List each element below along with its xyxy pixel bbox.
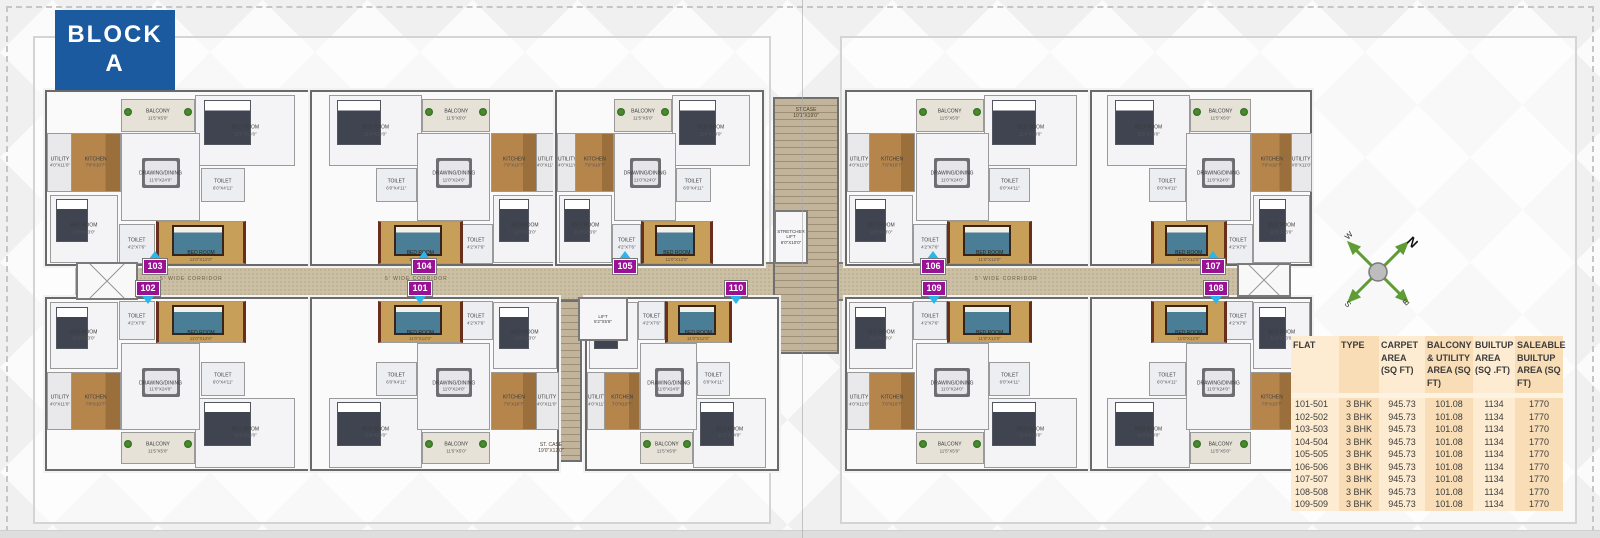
bedroom-room: BED ROOM11'0"X13'0" bbox=[50, 195, 118, 262]
unit-number-badge: 108 bbox=[1204, 281, 1227, 296]
bed-icon bbox=[992, 402, 1036, 446]
kitchen-room: KITCHEN7'0"X10'7" bbox=[1251, 372, 1292, 430]
table-row: 101-5013 BHK945.73101.0811341770 bbox=[1291, 398, 1563, 411]
room-label: UTILITY4'0"X11'0" bbox=[48, 396, 72, 407]
room-dims: 11'0"X24'0" bbox=[917, 387, 988, 392]
room-label: BED ROOM11'0"X12'0" bbox=[950, 331, 1028, 342]
room-dims: 11'0"X24'0" bbox=[122, 178, 199, 183]
room-label: KITCHEN7'0"X10'7" bbox=[492, 157, 536, 168]
flat-area-table: FLATTYPECARPET AREA (SQ FT)BALCONY & UTI… bbox=[1291, 336, 1563, 511]
room-dims: 11'0"X14'0" bbox=[196, 131, 294, 136]
room-label: TOILET6'0"X4'11" bbox=[202, 180, 244, 191]
table-cell: 1134 bbox=[1473, 498, 1515, 511]
bedroom-room: BED ROOM11'0"X14'0" bbox=[329, 398, 422, 468]
table-cell: 945.73 bbox=[1379, 411, 1425, 424]
room-dims: 7'0"X10'7" bbox=[576, 163, 613, 168]
table-cell: 109-509 bbox=[1291, 498, 1339, 511]
table-cell: 1770 bbox=[1515, 436, 1563, 449]
room-label: DRAWING/DINING11'0"X24'0" bbox=[418, 172, 489, 183]
room-dims: 11'5"X5'0" bbox=[423, 116, 489, 121]
column-header: TYPE bbox=[1339, 336, 1379, 393]
toilet-room: TOILET4'2"X7'6" bbox=[459, 224, 493, 264]
room-label: UTILITY4'0"X11'0" bbox=[48, 157, 72, 168]
column-header: SALEABLE BUILTUP AREA (SQ FT) bbox=[1515, 336, 1563, 393]
room-dims: 6'0"X4'11" bbox=[202, 379, 244, 384]
unit-109: UTILITY4'0"X11'0"KITCHEN7'0"X10'7"BALCON… bbox=[845, 297, 1094, 471]
table-row: 109-5093 BHK945.73101.0811341770 bbox=[1291, 498, 1563, 511]
room-label: BED ROOM11'0"X14'0" bbox=[985, 427, 1076, 438]
room-dims: 11'0"X24'0" bbox=[917, 178, 988, 183]
bedroom-room: BED ROOM11'0"X14'0" bbox=[984, 95, 1077, 166]
table-cell: 105-505 bbox=[1291, 448, 1339, 461]
room-label: UTILITY4'0"X11'0" bbox=[848, 157, 870, 168]
table-row: 108-5083 BHK945.73101.0811341770 bbox=[1291, 486, 1563, 499]
room-label: KITCHEN7'0"X10'7" bbox=[1252, 396, 1291, 407]
toilet-room: TOILET4'2"X7'6" bbox=[1223, 301, 1253, 340]
compass-e: E bbox=[1401, 297, 1411, 307]
master-room: BED ROOM11'0"X12'0" bbox=[947, 301, 1031, 344]
room-dims: 11'0"X13'0" bbox=[51, 229, 117, 234]
unit-badge-107: 107 bbox=[1198, 251, 1228, 274]
room-label: BED ROOM11'0"X12'0" bbox=[668, 331, 729, 342]
toilet-room: TOILET6'0"X4'11" bbox=[697, 362, 729, 396]
room-label: BED ROOM11'0"X13'0" bbox=[51, 330, 117, 341]
bedroom-room: BED ROOM11'0"X13'0" bbox=[849, 195, 912, 262]
room-label: UTILITY4'0"X11'0" bbox=[848, 396, 870, 407]
room-dims: 11'0"X13'0" bbox=[850, 336, 911, 341]
table-cell: 945.73 bbox=[1379, 498, 1425, 511]
room-dims: 11'0"X12'0" bbox=[950, 336, 1028, 341]
room-dims: 11'0"X14'0" bbox=[694, 433, 764, 438]
room-dims: 7'0"X10'7" bbox=[492, 401, 536, 406]
room-dims: 4'2"X7'6" bbox=[1224, 321, 1252, 326]
room-label: TOILET6'0"X4'11" bbox=[698, 374, 728, 385]
table-cell: 101.08 bbox=[1425, 473, 1473, 486]
table-cell: 945.73 bbox=[1379, 486, 1425, 499]
unit-number-badge: 102 bbox=[136, 281, 159, 296]
flat-table-header: FLATTYPECARPET AREA (SQ FT)BALCONY & UTI… bbox=[1291, 336, 1563, 393]
toilet-room: TOILET4'2"X7'6" bbox=[638, 301, 665, 340]
room-label: KITCHEN7'0"X10'7" bbox=[576, 157, 613, 168]
entrance-arrow-icon bbox=[418, 251, 430, 259]
toilet-room: TOILET6'0"X4'11" bbox=[201, 362, 245, 396]
room-dims: 11'0"X13'0" bbox=[1254, 229, 1309, 234]
room-dims: 7'0"X10'7" bbox=[72, 401, 120, 406]
room-dims: 4'0"X11'0" bbox=[848, 401, 870, 406]
bedroom-room: BED ROOM11'0"X14'0" bbox=[984, 398, 1077, 468]
room-label: BALCONY11'5"X5'0" bbox=[917, 110, 983, 121]
table-cell: 1134 bbox=[1473, 398, 1515, 411]
utility-room: UTILITY4'0"X11'0" bbox=[847, 372, 871, 430]
room-label: BED ROOM11'0"X14'0" bbox=[694, 427, 764, 438]
bed-icon bbox=[855, 307, 885, 349]
room-dims: 7'0"X10'7" bbox=[492, 163, 536, 168]
unit-107: UTILITY4'0"X11'0"KITCHEN7'0"X10'7"BALCON… bbox=[1090, 90, 1312, 266]
table-cell: 101-501 bbox=[1291, 398, 1339, 411]
room-dims: 7'0"X10'7" bbox=[605, 401, 639, 406]
room-label: TOILET4'2"X7'6" bbox=[120, 239, 154, 250]
master-room: BED ROOM11'0"X12'0" bbox=[156, 301, 247, 344]
kitchen-room: KITCHEN7'0"X10'7" bbox=[1251, 133, 1292, 192]
room-dims: 11'0"X24'0" bbox=[418, 387, 489, 392]
room-label: TOILET6'0"X4'11" bbox=[1150, 374, 1185, 385]
room-label: TOILET4'2"X7'6" bbox=[120, 315, 154, 326]
room-label: UTILITY4'0"X11'0" bbox=[536, 396, 558, 407]
room-label: KITCHEN7'0"X10'7" bbox=[72, 157, 120, 168]
kitchen-room: KITCHEN7'0"X10'7" bbox=[71, 372, 121, 430]
table-cell: 1134 bbox=[1473, 423, 1515, 436]
lift-dims: 5'2"X5'6" bbox=[594, 319, 612, 324]
flat-table-body: 101-5013 BHK945.73101.0811341770102-5023… bbox=[1291, 393, 1563, 511]
drawing-room: DRAWING/DINING11'0"X24'0" bbox=[916, 343, 989, 430]
table-row: 106-5063 BHK945.73101.0811341770 bbox=[1291, 461, 1563, 474]
entrance-arrow-icon bbox=[928, 296, 940, 304]
balcony-room: BALCONY11'5"X5'0" bbox=[1190, 99, 1251, 132]
table-row: 103-5033 BHK945.73101.0811341770 bbox=[1291, 423, 1563, 436]
unit-number-badge: 101 bbox=[408, 281, 431, 296]
room-label: UTILITY4'0"X11'0" bbox=[558, 157, 576, 168]
room-dims: 11'0"X12'0" bbox=[159, 336, 244, 341]
room-dims: 4'0"X11'0" bbox=[1291, 163, 1311, 168]
table-cell: 1770 bbox=[1515, 461, 1563, 474]
room-label: BALCONY11'5"X5'0" bbox=[1191, 110, 1250, 121]
utility-room: UTILITY4'0"X11'0" bbox=[535, 372, 559, 430]
entrance-arrow-icon bbox=[730, 296, 742, 304]
table-cell: 101.08 bbox=[1425, 498, 1473, 511]
unit-number-badge: 107 bbox=[1201, 259, 1224, 274]
room-label: KITCHEN7'0"X10'7" bbox=[870, 157, 914, 168]
balcony-room: BALCONY11'5"X5'0" bbox=[1190, 432, 1251, 465]
room-dims: 4'2"X7'6" bbox=[120, 245, 154, 250]
table-row: 105-5053 BHK945.73101.0811341770 bbox=[1291, 448, 1563, 461]
room-dims: 7'0"X10'7" bbox=[870, 401, 914, 406]
room-dims: 11'0"X14'0" bbox=[196, 433, 294, 438]
room-label: BALCONY11'5"X5'0" bbox=[917, 442, 983, 453]
unit-number-badge: 104 bbox=[412, 259, 435, 274]
unit-badge-102: 102 bbox=[133, 281, 163, 304]
table-cell: 3 BHK bbox=[1339, 411, 1379, 424]
lift-label: LIFT bbox=[598, 314, 607, 319]
table-cell: 101.08 bbox=[1425, 423, 1473, 436]
room-label: KITCHEN7'0"X10'7" bbox=[492, 396, 536, 407]
room-label: TOILET6'0"X4'11" bbox=[990, 374, 1029, 385]
unit-badge-104: 104 bbox=[409, 251, 439, 274]
entrance-arrow-icon bbox=[414, 296, 426, 304]
table-cell: 1770 bbox=[1515, 411, 1563, 424]
room-dims: 4'2"X7'6" bbox=[639, 321, 664, 326]
bedroom-room: BED ROOM11'0"X13'0" bbox=[559, 195, 612, 262]
room-dims: 7'0"X10'7" bbox=[870, 163, 914, 168]
table-cell: 945.73 bbox=[1379, 436, 1425, 449]
balcony-room: BALCONY11'5"X5'0" bbox=[916, 99, 984, 132]
table-cell: 1134 bbox=[1473, 486, 1515, 499]
utility-room: UTILITY4'0"X11'0" bbox=[1290, 133, 1312, 192]
room-dims: 4'2"X7'6" bbox=[914, 245, 946, 250]
unit-number-badge: 106 bbox=[921, 259, 944, 274]
room-label: BED ROOM11'0"X14'0" bbox=[196, 427, 294, 438]
room-label: DRAWING/DINING11'0"X24'0" bbox=[615, 172, 674, 183]
bed-icon bbox=[992, 100, 1036, 145]
room-label: TOILET4'2"X7'6" bbox=[1224, 315, 1252, 326]
compass-icon: N W S E bbox=[1338, 228, 1418, 312]
unit-badge-106: 106 bbox=[918, 251, 948, 274]
room-label: BALCONY11'5"X5'0" bbox=[122, 110, 194, 121]
balcony-room: BALCONY11'5"X5'0" bbox=[121, 432, 195, 465]
room-dims: 11'5"X5'0" bbox=[641, 448, 692, 453]
unit-badge-108: 108 bbox=[1201, 281, 1231, 304]
room-label: BED ROOM11'0"X12'0" bbox=[381, 331, 459, 342]
bed-icon bbox=[499, 199, 529, 242]
room-label: BED ROOM11'0"X13'0" bbox=[494, 330, 555, 341]
room-dims: 11'0"X14'0" bbox=[985, 433, 1076, 438]
staircase-bottom-dims: 19'0"X12'0" bbox=[538, 448, 563, 454]
unit-number-badge: 110 bbox=[725, 281, 748, 296]
room-dims: 4'0"X11'0" bbox=[558, 163, 576, 168]
room-label: BALCONY11'5"X5'0" bbox=[641, 442, 692, 453]
bedroom-room: BED ROOM11'0"X13'0" bbox=[493, 302, 556, 369]
toilet-room: TOILET6'0"X4'11" bbox=[989, 168, 1030, 203]
column-header: BALCONY & UTILITY AREA (SQ FT) bbox=[1425, 336, 1473, 393]
room-dims: 6'0"X4'11" bbox=[1150, 379, 1185, 384]
floor-plan-page: BLOCK A 5' WIDE CORRIDOR 5' WIDE CORRIDO… bbox=[0, 0, 1600, 538]
room-label: BED ROOM11'0"X12'0" bbox=[1154, 331, 1224, 342]
table-cell: 106-506 bbox=[1291, 461, 1339, 474]
bed-icon bbox=[337, 402, 381, 446]
drawing-room: DRAWING/DINING11'0"X24'0" bbox=[640, 343, 697, 430]
room-label: BED ROOM11'0"X13'0" bbox=[850, 330, 911, 341]
bed-icon bbox=[204, 100, 251, 145]
bedroom-room: BED ROOM11'0"X13'0" bbox=[1253, 195, 1310, 262]
room-dims: 6'0"X4'11" bbox=[990, 185, 1029, 190]
room-label: UTILITY4'0"X11'0" bbox=[588, 396, 605, 407]
room-label: BED ROOM11'0"X14'0" bbox=[1108, 125, 1189, 136]
room-dims: 11'0"X24'0" bbox=[615, 178, 674, 183]
room-dims: 11'0"X12'0" bbox=[668, 336, 729, 341]
room-dims: 6'0"X4'11" bbox=[377, 379, 416, 384]
room-label: KITCHEN7'0"X10'7" bbox=[72, 396, 120, 407]
room-dims: 4'0"X11'0" bbox=[48, 163, 72, 168]
staircase-top-dims: 10'1"X19'0" bbox=[793, 113, 818, 119]
room-dims: 11'0"X24'0" bbox=[122, 387, 199, 392]
unit-106: UTILITY4'0"X11'0"KITCHEN7'0"X10'7"BALCON… bbox=[845, 90, 1094, 266]
room-dims: 11'0"X14'0" bbox=[985, 131, 1076, 136]
master-room: BED ROOM11'0"X12'0" bbox=[378, 301, 462, 344]
room-label: TOILET4'2"X7'6" bbox=[914, 239, 946, 250]
table-cell: 1134 bbox=[1473, 461, 1515, 474]
master-room: BED ROOM11'0"X12'0" bbox=[665, 301, 732, 344]
table-cell: 3 BHK bbox=[1339, 423, 1379, 436]
table-row: 104-5043 BHK945.73101.0811341770 bbox=[1291, 436, 1563, 449]
room-label: BED ROOM11'0"X14'0" bbox=[330, 427, 421, 438]
bedroom-room: BED ROOM11'0"X13'0" bbox=[493, 195, 556, 262]
room-label: DRAWING/DINING11'0"X24'0" bbox=[917, 172, 988, 183]
bed-icon bbox=[679, 100, 716, 145]
bed-icon bbox=[1115, 402, 1154, 446]
toilet-room: TOILET6'0"X4'11" bbox=[376, 168, 417, 203]
table-cell: 945.73 bbox=[1379, 423, 1425, 436]
unit-108: UTILITY4'0"X11'0"KITCHEN7'0"X10'7"BALCON… bbox=[1090, 297, 1312, 471]
page-fold-line bbox=[802, 0, 803, 538]
room-label: KITCHEN7'0"X10'7" bbox=[870, 396, 914, 407]
room-dims: 4'0"X11'0" bbox=[48, 401, 72, 406]
room-dims: 6'0"X4'11" bbox=[202, 185, 244, 190]
unit-103: UTILITY4'0"X11'0"KITCHEN7'0"X10'7"BALCON… bbox=[45, 90, 314, 266]
room-dims: 11'0"X12'0" bbox=[1154, 336, 1224, 341]
bedroom-room: BED ROOM11'0"X14'0" bbox=[693, 398, 765, 468]
unit-number-badge: 103 bbox=[143, 259, 166, 274]
room-dims: 11'5"X5'0" bbox=[423, 448, 489, 453]
bed-icon bbox=[1259, 199, 1286, 242]
table-cell: 3 BHK bbox=[1339, 498, 1379, 511]
table-cell: 3 BHK bbox=[1339, 448, 1379, 461]
room-dims: 4'0"X11'0" bbox=[848, 163, 870, 168]
table-cell: 103-503 bbox=[1291, 423, 1339, 436]
room-label: BALCONY11'5"X5'0" bbox=[615, 110, 670, 121]
toilet-room: TOILET4'2"X7'6" bbox=[913, 301, 947, 340]
room-dims: 11'5"X5'0" bbox=[1191, 448, 1250, 453]
toilet-room: TOILET6'0"X4'11" bbox=[1149, 168, 1186, 203]
table-cell: 945.73 bbox=[1379, 461, 1425, 474]
block-a-badge: BLOCK A bbox=[55, 10, 175, 90]
room-label: TOILET4'2"X7'6" bbox=[460, 315, 492, 326]
room-dims: 11'0"X14'0" bbox=[1108, 433, 1189, 438]
room-dims: 6'0"X4'11" bbox=[1150, 185, 1185, 190]
room-label: UTILITY4'0"X11'0" bbox=[1291, 157, 1311, 168]
corridor-left-shaft bbox=[76, 262, 138, 300]
kitchen-room: KITCHEN7'0"X10'7" bbox=[491, 372, 537, 430]
room-dims: 4'2"X7'6" bbox=[120, 321, 154, 326]
unit-badge-110: 110 bbox=[721, 281, 751, 304]
room-dims: 4'2"X7'6" bbox=[460, 321, 492, 326]
bedroom-room: BED ROOM11'0"X14'0" bbox=[1107, 95, 1190, 166]
room-label: TOILET4'2"X7'6" bbox=[639, 315, 664, 326]
room-label: BED ROOM11'0"X13'0" bbox=[1254, 223, 1309, 234]
balcony-room: BALCONY11'5"X5'0" bbox=[640, 432, 693, 465]
kitchen-room: KITCHEN7'0"X10'7" bbox=[575, 133, 614, 192]
room-dims: 11'0"X24'0" bbox=[1187, 178, 1250, 183]
entrance-arrow-icon bbox=[927, 251, 939, 259]
room-dims: 7'0"X10'7" bbox=[1252, 163, 1291, 168]
bed-icon bbox=[56, 199, 88, 242]
room-label: TOILET6'0"X4'11" bbox=[677, 180, 710, 191]
table-cell: 101.08 bbox=[1425, 436, 1473, 449]
unit-105: UTILITY4'0"X11'0"KITCHEN7'0"X10'7"BALCON… bbox=[555, 90, 764, 266]
unit-badge-105: 105 bbox=[610, 251, 640, 274]
column-header: CARPET AREA (SQ FT) bbox=[1379, 336, 1425, 393]
toilet-room: TOILET6'0"X4'11" bbox=[201, 168, 245, 203]
unit-badge-109: 109 bbox=[919, 281, 949, 304]
room-label: BED ROOM11'0"X14'0" bbox=[1108, 427, 1189, 438]
room-dims: 11'0"X12'0" bbox=[159, 257, 244, 262]
master-room: BED ROOM11'0"X12'0" bbox=[641, 221, 713, 264]
block-label-line1: BLOCK bbox=[67, 21, 162, 50]
bed-icon bbox=[337, 100, 381, 145]
kitchen-room: KITCHEN7'0"X10'7" bbox=[869, 133, 915, 192]
room-dims: 11'0"X12'0" bbox=[644, 257, 710, 262]
kitchen-room: KITCHEN7'0"X10'7" bbox=[491, 133, 537, 192]
room-dims: 6'0"X4'11" bbox=[377, 185, 416, 190]
table-cell: 1770 bbox=[1515, 398, 1563, 411]
bedroom-room: BED ROOM11'0"X14'0" bbox=[672, 95, 750, 166]
drawing-room: DRAWING/DINING11'0"X24'0" bbox=[417, 133, 490, 221]
entrance-arrow-icon bbox=[1210, 296, 1222, 304]
unit-badge-101: 101 bbox=[405, 281, 435, 304]
entrance-arrow-icon bbox=[142, 296, 154, 304]
room-dims: 11'0"X14'0" bbox=[673, 131, 749, 136]
table-cell: 1134 bbox=[1473, 411, 1515, 424]
bed-icon bbox=[564, 199, 590, 242]
bedroom-room: BED ROOM11'0"X14'0" bbox=[1107, 398, 1190, 468]
unit-number-badge: 105 bbox=[613, 259, 636, 274]
room-dims: 11'0"X12'0" bbox=[381, 336, 459, 341]
bedroom-room: BED ROOM11'0"X14'0" bbox=[195, 95, 295, 166]
room-dims: 4'2"X7'6" bbox=[460, 245, 492, 250]
drawing-room: DRAWING/DINING11'0"X24'0" bbox=[121, 133, 200, 221]
room-label: DRAWING/DINING11'0"X24'0" bbox=[122, 172, 199, 183]
room-label: BALCONY11'5"X5'0" bbox=[423, 442, 489, 453]
table-cell: 1770 bbox=[1515, 486, 1563, 499]
room-dims: 11'0"X14'0" bbox=[330, 433, 421, 438]
room-label: BED ROOM11'0"X12'0" bbox=[159, 251, 244, 262]
table-cell: 3 BHK bbox=[1339, 486, 1379, 499]
bed-icon bbox=[1259, 307, 1286, 349]
room-dims: 4'2"X7'6" bbox=[1224, 245, 1252, 250]
room-label: KITCHEN7'0"X10'7" bbox=[1252, 157, 1291, 168]
room-dims: 11'0"X14'0" bbox=[1108, 131, 1189, 136]
block-label-line2: A bbox=[105, 50, 124, 79]
drawing-room: DRAWING/DINING11'0"X24'0" bbox=[614, 133, 675, 221]
table-cell: 108-508 bbox=[1291, 486, 1339, 499]
compass-w: W bbox=[1343, 229, 1355, 241]
room-label: TOILET6'0"X4'11" bbox=[377, 180, 416, 191]
room-dims: 11'0"X12'0" bbox=[950, 257, 1028, 262]
corridor-label: 5' WIDE CORRIDOR bbox=[975, 276, 1038, 282]
room-dims: 11'0"X13'0" bbox=[494, 336, 555, 341]
table-cell: 945.73 bbox=[1379, 473, 1425, 486]
balcony-room: BALCONY11'5"X5'0" bbox=[121, 99, 195, 132]
utility-room: UTILITY4'0"X11'0" bbox=[47, 372, 73, 430]
room-label: BED ROOM11'0"X14'0" bbox=[330, 125, 421, 136]
table-cell: 101.08 bbox=[1425, 486, 1473, 499]
room-dims: 11'0"X13'0" bbox=[850, 229, 911, 234]
room-label: TOILET4'2"X7'6" bbox=[460, 239, 492, 250]
room-dims: 11'5"X5'0" bbox=[615, 116, 670, 121]
room-dims: 11'5"X5'0" bbox=[122, 448, 194, 453]
table-row: 102-5023 BHK945.73101.0811341770 bbox=[1291, 411, 1563, 424]
room-dims: 11'0"X13'0" bbox=[494, 229, 555, 234]
table-cell: 104-504 bbox=[1291, 436, 1339, 449]
table-cell: 3 BHK bbox=[1339, 436, 1379, 449]
bed-icon bbox=[855, 199, 885, 242]
kitchen-room: KITCHEN7'0"X10'7" bbox=[869, 372, 915, 430]
table-cell: 101.08 bbox=[1425, 398, 1473, 411]
balcony-room: BALCONY11'5"X5'0" bbox=[422, 432, 490, 465]
table-cell: 1770 bbox=[1515, 448, 1563, 461]
table-cell: 1770 bbox=[1515, 498, 1563, 511]
toilet-room: TOILET6'0"X4'11" bbox=[376, 362, 417, 396]
table-cell: 945.73 bbox=[1379, 448, 1425, 461]
unit-number-badge: 109 bbox=[922, 281, 945, 296]
table-cell: 945.73 bbox=[1379, 398, 1425, 411]
bed-icon bbox=[204, 402, 251, 446]
table-cell: 101.08 bbox=[1425, 461, 1473, 474]
table-cell: 1770 bbox=[1515, 473, 1563, 486]
room-dims: 11'5"X5'0" bbox=[122, 116, 194, 121]
entrance-arrow-icon bbox=[619, 251, 631, 259]
unit-badge-103: 103 bbox=[140, 251, 170, 274]
room-label: BED ROOM11'0"X12'0" bbox=[950, 251, 1028, 262]
room-label: BED ROOM11'0"X13'0" bbox=[494, 223, 555, 234]
